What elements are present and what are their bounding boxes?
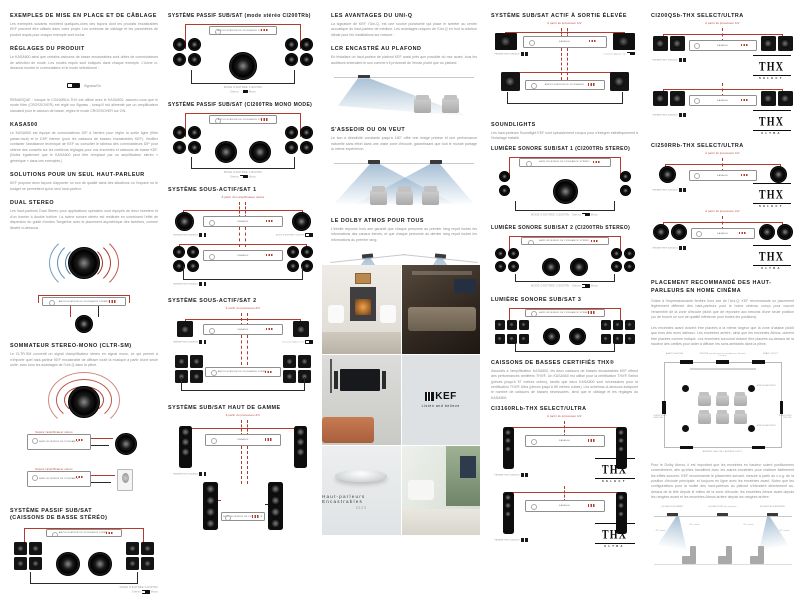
square-speaker-icon <box>14 542 27 555</box>
tower-speaker-icon <box>268 482 283 530</box>
square-speaker-icon <box>177 321 193 337</box>
wire-caption: À partir du processeur A/V <box>168 307 318 310</box>
kef-tagline: Listen and believe <box>422 404 460 408</box>
dip-switch-icon <box>525 52 528 56</box>
round-speaker-icon <box>659 166 676 183</box>
round-speaker-icon <box>653 224 669 240</box>
input-mode-caption: MODE D'ENTRÉE CI200TRbStereo Mono <box>168 86 318 94</box>
section-body: Grâce à l'impressionnante fenêtre hors a… <box>651 299 794 321</box>
wire-caption: À partir du processeur A/V <box>168 414 318 417</box>
square-speaker-icon <box>761 36 776 51</box>
tower-speaker-icon <box>203 482 218 530</box>
kasa-settings-caption: PARAMÈTRES KASA500 <box>653 58 709 62</box>
amplifier-box: AMPLIFICATEUR DE PUISSANCE STÉRÉO <box>525 309 605 317</box>
seat-icon <box>734 413 747 424</box>
diagram-title: CI200QSb-THX SELECT/ULTRA <box>651 13 794 19</box>
amplifier-box: KASA500 <box>525 500 605 512</box>
switch-label: Bypass/On <box>84 84 101 88</box>
amplifier-box: KASA500 <box>689 170 757 181</box>
seat-icon <box>716 413 729 424</box>
dip-switch-icon <box>521 538 524 542</box>
round-speaker-icon <box>611 248 622 259</box>
diagram-title: SYSTÈME PASSIF SUB/SAT (mode stéréo CI20… <box>168 13 318 19</box>
section-body: Pour le Dolby Atmos, il est important qu… <box>651 463 794 501</box>
atmos-ceiling-speaker <box>682 385 689 392</box>
round-speaker-icon <box>759 224 775 240</box>
tv-screen <box>460 456 476 478</box>
round-speaker-icon <box>188 53 201 66</box>
square-speaker-icon <box>670 91 685 106</box>
amplifier-box: KASA500 <box>689 95 757 106</box>
ceiling-line <box>334 77 474 78</box>
seat-icon <box>442 98 459 113</box>
amplifier-box: KASA500 <box>691 228 755 239</box>
square-speaker-icon <box>613 334 623 344</box>
round-speaker-icon <box>285 38 298 51</box>
amplifier-box: AMPLIFICATEUR DE PUISSANCE STÉRÉO <box>209 115 277 124</box>
square-speaker-icon <box>778 91 793 106</box>
subwoofer-icon <box>569 328 586 345</box>
cover-product-tile: Haut-parleurs Encastrables 2023 <box>322 446 401 535</box>
amplifier-box: AMPLIFICATEUR DE PUISSANCE STÉRÉO <box>209 26 277 35</box>
section-title: CAISSONS DE BASSES CERTIFIÉS THX® <box>491 360 638 366</box>
atmos-label: EN HAUTEUR AVANT <box>654 506 692 509</box>
seat-icon <box>734 395 747 406</box>
section-body: L'étroite réponse hors axe garantit que … <box>331 227 477 243</box>
diagram-lumiere-3: LUMIÈRE SONORE SUB/SAT 3 AMPLIFICATEUR D… <box>491 297 638 352</box>
wire-black <box>91 445 109 446</box>
section-uniq: LES AVANTAGES DU UNI-Q La signature de K… <box>331 13 477 38</box>
section-solutions: SOLUTIONS POUR UN SEUL HAUT-PARLEUR KEF … <box>10 172 158 192</box>
input-mode-caption: MODE D'ENTRÉE CI200TRb Stereo Mono <box>491 284 638 288</box>
atmos-ceiling-speaker <box>748 385 755 392</box>
photo-tv-wall-room <box>322 355 401 444</box>
round-speaker-icon <box>188 141 201 154</box>
cltr-sm-box: AMPLIFICATEUR DE PUISSANCE <box>27 471 91 487</box>
round-speaker-icon <box>300 38 313 51</box>
section-placement: PLACEMENT RECOMMANDÉ DES HAUT-PARLEURS E… <box>651 280 794 570</box>
section-body: Le KASA500 ainsi que certains caissons d… <box>10 55 158 71</box>
ceiling-speaker-icon <box>667 513 678 516</box>
square-speaker-icon <box>625 334 635 344</box>
photo-living-room-fireplace <box>322 265 401 354</box>
mode-switch-icon <box>240 90 248 93</box>
square-speaker-icon <box>519 320 529 330</box>
cabinet-speaker-icon <box>613 33 635 50</box>
room-illustration-lcr <box>334 71 474 119</box>
seat-icon <box>698 395 711 406</box>
crossover-caption: Crossover Bypass / On <box>265 340 313 344</box>
room-label: ATMOS/HAUTEUR <box>757 425 789 428</box>
round-speaker-icon <box>777 224 793 240</box>
dip-switch-icon <box>683 246 686 250</box>
atmos-side-diagram: EN HAUTEUR AVANT EN HAUTEUR (2e position… <box>654 506 792 570</box>
section-kasa500: KASA500 Le KASA500 est équipé de commuta… <box>10 122 158 164</box>
section-body: En installant un haut-parleur de plafond… <box>331 55 477 66</box>
dual-stereo-wiring: AMPLIFICATEUR DE PUISSANCE STÉRÉO <box>24 295 144 335</box>
front-left-speaker <box>680 360 693 364</box>
round-speaker-icon <box>285 53 298 66</box>
ceiling-line <box>334 163 474 164</box>
amplifier-box: AMPLIFICATEUR DE PUISSANCE STÉRÉO <box>519 158 611 167</box>
dip-switch-icon <box>199 233 202 237</box>
kasa-settings-caption: PARAMÈTRES KASA500 <box>495 52 553 56</box>
square-speaker-icon <box>507 334 517 344</box>
seat-icon <box>370 190 387 205</box>
centre-speaker <box>716 360 729 364</box>
section-title: SOMMATEUR STEREO-MONO (CLTR-SM) <box>10 343 158 349</box>
section-exemples: EXEMPLES DE MISE EN PLACE ET DE CÂBLAGE … <box>10 13 158 38</box>
dip-switch-icon <box>521 52 524 56</box>
square-speaker-icon <box>653 36 668 51</box>
wire-black <box>91 482 111 483</box>
section-sasseoir: S'ASSEOIR OU ON VEUT Le son à directivit… <box>331 127 477 209</box>
section-title: S'ASSEOIR OU ON VEUT <box>331 127 477 133</box>
kasa-settings-caption: PARAMÈTRES KASA500 <box>495 473 551 477</box>
square-speaker-icon <box>126 542 139 555</box>
wire-black <box>265 504 268 505</box>
wire-red <box>91 438 113 439</box>
cltr-sm-wiring-2: Depuis l'amplificateur stéréo AMPLIFICAT… <box>19 466 149 500</box>
wire-black <box>30 572 138 584</box>
round-speaker-icon <box>624 261 635 272</box>
input-mode-caption: MODE D'ENTRÉE CI200TRb Stereo Mono <box>491 213 638 217</box>
ceiling-speaker-icon <box>717 513 728 516</box>
section-soundlights: SOUNDLIGHTS Les haut-parleurs Soundlight… <box>491 122 638 142</box>
square-speaker-icon <box>495 320 505 330</box>
kasa-settings-caption: PARAMÈTRES KASA500 <box>173 472 231 476</box>
mode-switch-icon <box>240 175 248 178</box>
crossover-caption: Crossover Bypass / On <box>589 52 635 56</box>
square-speaker-icon <box>141 557 154 570</box>
kasa-settings-caption: PARAMÈTRES KASA500 <box>653 188 709 192</box>
dip-switch-icon <box>683 113 686 117</box>
square-speaker-icon <box>601 320 611 330</box>
section-passif-stereo-subs: SYSTÈME PASSIF SUB/SAT(CAISSONS DE BASSE… <box>10 508 158 595</box>
mode-switch-icon <box>305 233 313 236</box>
amplifier-box: KASA500 <box>203 250 283 261</box>
room-label: SURROUND DROITE <box>776 415 792 420</box>
square-speaker-icon <box>293 321 309 337</box>
diagram-sous-actif-1: SYSTÈME SOUS-ACTIF/SAT 1 À partir d'un a… <box>168 187 318 290</box>
amplifier-box: KASA500 <box>689 40 757 51</box>
section-lcr-plafond: LCR ENCASTRÉ AU PLAFOND En installant un… <box>331 46 477 119</box>
round-speaker-icon <box>187 246 199 258</box>
floor-line <box>654 564 792 565</box>
thx-ultra-logo: THXULTRA <box>753 245 791 270</box>
brochure-cover-collage: KEF Listen and believe Haut-parleurs Enc… <box>322 265 480 535</box>
wire-caption: À partir du processeur A/V <box>491 22 638 25</box>
round-speaker-icon <box>285 126 298 139</box>
section-body: La signature de KEF, l'Uni-Q, est une so… <box>331 22 477 38</box>
square-speaker-icon <box>495 334 505 344</box>
column-passive-systems: SYSTÈME PASSIF SUB/SAT (mode stéréo CI20… <box>168 0 318 540</box>
square-speaker-icon <box>610 72 629 91</box>
round-speaker-icon <box>173 141 186 154</box>
seat-icon <box>698 413 711 424</box>
room-illustration-wide <box>334 158 474 210</box>
diagram-lumiere-1: LUMIÈRE SONORE SUB/SAT 1 (CI200TRb STERE… <box>491 146 638 217</box>
wire-black <box>507 92 623 104</box>
round-speaker-icon <box>508 261 519 272</box>
kasa-settings-caption: PARAMÈTRES KASA500 <box>653 113 709 117</box>
diagram-title: SYSTÈME SOUS-ACTIF/SAT 2 <box>168 298 318 304</box>
square-speaker-icon <box>653 91 668 106</box>
seat-icon <box>414 98 431 113</box>
round-speaker-icon <box>175 212 194 231</box>
diagram-ci200qsb: CI200QSb-THX SELECT/ULTRA À partir du pr… <box>651 13 794 135</box>
square-speaker-icon <box>670 36 685 51</box>
amplifier-box: AMPLIFICATEUR DE PUISSANCE STÉRÉO <box>42 297 126 306</box>
room-label: ATMOS/HAUTEUR <box>757 385 789 388</box>
section-title: KASA500 <box>10 122 158 128</box>
section-title: LCR ENCASTRÉ AU PLAFOND <box>331 46 477 52</box>
input-mode-caption: MODE D'ENTRÉE CI200TRbStereo Mono <box>168 171 318 179</box>
square-speaker-icon <box>501 72 520 91</box>
dual-stereo-figure <box>36 236 132 292</box>
column-speaker-icon <box>179 426 192 468</box>
front-right-speaker <box>752 360 765 364</box>
diagram-title: SYSTÈME SUB/SAT HAUT DE GAMME <box>168 405 318 411</box>
wiring-diagram-ultra: KASA500 PARAMÈTRES KASA500 THXULTRA <box>495 486 635 548</box>
wire-red-dashed <box>247 335 248 365</box>
round-speaker-icon <box>671 224 687 240</box>
sofa <box>408 307 476 331</box>
square-speaker-icon <box>519 334 529 344</box>
wire-black <box>515 201 615 211</box>
wiring-diagram: KASA500 PARAMÈTRES KASA500 Crossover Byp… <box>173 313 313 397</box>
dip-switch-icon <box>683 58 686 62</box>
column-thx-placement: CI200QSb-THX SELECT/ULTRA À partir du pr… <box>651 0 794 578</box>
round-speaker-icon <box>285 141 298 154</box>
section-title: SOLUTIONS POUR UN SEUL HAUT-PARLEUR <box>10 172 158 178</box>
room-label: CENTRE (au-dessous ou au-dessus / derriè… <box>696 353 750 358</box>
amplifier-box: AMPLIFICATEUR DE PUISSANCE STÉRÉO <box>205 367 281 377</box>
seat-icon <box>396 190 413 205</box>
wire-red-dashed <box>247 446 248 484</box>
seat-icon <box>750 546 764 564</box>
wire-black <box>515 344 615 352</box>
wire-red <box>218 500 221 501</box>
dip-switch-icon <box>204 340 207 344</box>
surround-right-speaker <box>780 401 784 414</box>
square-speaker-icon <box>613 320 623 330</box>
section-body: Les haut-parleurs Soundlight KEF sont sp… <box>491 131 638 142</box>
wire-red <box>70 306 71 317</box>
wire-black <box>515 274 615 282</box>
armchair <box>408 480 434 500</box>
round-speaker-icon <box>301 246 313 258</box>
armchair <box>328 305 344 323</box>
mode-switch-icon <box>582 213 590 216</box>
wire-black <box>191 70 295 84</box>
diagram-title: LUMIÈRE SONORE SUB/SAT 1 (CI200TRb STERE… <box>491 146 638 152</box>
cover-year: 2023 <box>356 506 367 510</box>
diagram-title: LUMIÈRE SONORE SUB/SAT 3 <box>491 297 638 303</box>
bypass-switch-icon <box>67 83 80 88</box>
square-speaker-icon <box>625 320 635 330</box>
column-uniq-benefits: LES AVANTAGES DU UNI-Q La signature de K… <box>331 0 477 306</box>
section-dual-stereo: DUAL STEREO Les haut-parleurs Dual Stere… <box>10 200 158 335</box>
round-speaker-icon <box>499 185 510 196</box>
wiring-diagram: KASA500 PARAMÈTRES KASA500 MODE D'ENTRÉE… <box>173 202 313 290</box>
diagram-title: LUMIÈRE SONORE SUB/SAT 2 (CI200TRb STERE… <box>491 225 638 231</box>
dip-switch-icon <box>199 340 202 344</box>
dip-switch-icon <box>199 472 202 476</box>
atmos-label: EN HAUTEUR (2e position) <box>704 506 742 509</box>
diagram-passif-stereo: SYSTÈME PASSIF SUB/SAT (mode stéréo CI20… <box>168 13 318 94</box>
column-active-systems: SYSTÈME SUB/SAT ACTIF À SORTIE ÉLEVÉE À … <box>491 0 638 556</box>
fire-glow <box>355 299 371 315</box>
wire-black <box>191 157 295 169</box>
wire-red-dashed <box>241 446 242 484</box>
amplifier-box: KASA500 <box>205 434 281 446</box>
dip-switch-icon <box>204 233 207 237</box>
wiring-diagram: AMPLIFICATEUR DE PUISSANCE STÉRÉO <box>495 155 635 211</box>
thx-ultra-logo: THXULTRA <box>595 523 635 548</box>
dip-switch-icon <box>679 58 682 62</box>
square-speaker-icon <box>778 36 793 51</box>
section-body: Les exemples suivants montrent quelques-… <box>10 22 158 38</box>
wiring-diagram-ultra: KASA500 PARAMÈTRES KASA500 THXULTRA <box>653 83 793 135</box>
rear-left-speaker <box>680 446 693 450</box>
input-mode-caption: MODE D'ENTRÉE CI200TRb <box>257 233 313 237</box>
section-reglages: RÉGLAGES DU PRODUIT Le KASA500 ainsi que… <box>10 46 158 114</box>
dip-switch-icon <box>679 113 682 117</box>
kef-logo-icon <box>425 392 434 401</box>
ceiling-speaker-icon <box>430 160 442 164</box>
section-body: Le CLTR-SM convertit un signal d'amplifi… <box>10 352 158 368</box>
section-sommateur: SOMMATEUR STEREO-MONO (CLTR-SM) Le CLTR-… <box>10 343 158 499</box>
wiring-diagram: AMPLIFICATEUR DE PUISSANCE STÉRÉO <box>173 22 313 84</box>
wire-caption: À partir du processeur A/V <box>651 22 794 25</box>
dip-switch-icon <box>199 282 202 286</box>
section-body: REMARQUE : lorsque le CI3160RLb-THX est … <box>10 98 158 114</box>
section-body: Le KASA500 est équipé de commutateurs DI… <box>10 131 158 164</box>
seat-icon <box>682 546 696 564</box>
room-label: AVANT GAUCHE <box>658 353 692 356</box>
round-speaker-icon <box>620 171 631 182</box>
rug <box>322 332 401 354</box>
round-speaker-icon <box>300 141 313 154</box>
section-title: LE DOLBY ATMOS POUR TOUS <box>331 218 477 224</box>
wiring-diagram: KASA500 PARAMÈTRES KASA500 AMPLIFICATEUR… <box>173 420 313 532</box>
round-speaker-icon <box>173 126 186 139</box>
amplifier-box: KASA500 <box>203 216 283 227</box>
amplifier-box: KASA500 <box>523 36 607 48</box>
round-speaker-icon <box>495 261 506 272</box>
angle-label: 65° (max) <box>742 524 756 527</box>
section-title: SYSTÈME PASSIF SUB/SAT(CAISSONS DE BASSE… <box>10 508 158 524</box>
rug <box>402 509 481 535</box>
cabinet-speaker-icon <box>495 33 517 50</box>
square-speaker-icon <box>601 334 611 344</box>
round-speaker-icon <box>495 248 506 259</box>
diagram-title: SYSTÈME SUB/SAT ACTIF À SORTIE ÉLEVÉE <box>491 13 638 19</box>
ceiling-line <box>654 516 792 517</box>
atmos-ceiling-speaker <box>682 425 689 432</box>
angle-label: 65° (max) <box>688 524 702 527</box>
ceiling-speaker-product <box>335 470 387 482</box>
round-speaker-icon <box>300 53 313 66</box>
thx-select-logo: THXSELECT <box>753 183 791 208</box>
thx-select-logo: THXSELECT <box>595 458 635 483</box>
cltr-sm-box: AMPLIFICATEUR DE PUISSANCE <box>27 434 91 450</box>
seat-icon <box>716 395 729 406</box>
angle-label: 45° (max) <box>778 530 792 533</box>
dip-switch-icon <box>521 473 524 477</box>
round-speaker-icon <box>173 53 186 66</box>
section-title: LES AVANTAGES DU UNI-Q <box>331 13 477 19</box>
wire-caption: À partir d'un amplificateur stéréo <box>168 196 318 199</box>
atmos-ceiling-speaker <box>748 425 755 432</box>
ceiling-speaker-icon <box>767 513 778 516</box>
wiring-diagram: AMPLIFICATEUR DE PUISSANCE STÉRÉO <box>495 234 635 282</box>
square-speaker-icon <box>298 355 311 368</box>
round-speaker-icon <box>508 248 519 259</box>
square-speaker-icon <box>126 557 139 570</box>
kasa-settings-caption: PARAMÈTRES KASA500 <box>653 246 709 250</box>
diagram-passif-mono: SYSTÈME PASSIF SUB/SAT (CI200TRb MONO MO… <box>168 102 318 179</box>
section-body: Le son à directivité constante jusqu'à 1… <box>331 136 477 152</box>
section-title: SOUNDLIGHTS <box>491 122 638 128</box>
amplifier-box: AMPLIFICATEUR DE PUISSANCE <box>525 80 605 90</box>
in-wall-subwoofer-icon <box>503 492 514 534</box>
round-speaker-icon <box>770 166 787 183</box>
room-label: ARRIÈRE GAUCHE / ARRIÈRE DROIT <box>676 451 770 454</box>
wire-black <box>183 266 303 280</box>
cover-title: Haut-parleurs Encastrables <box>322 494 401 504</box>
square-speaker-icon <box>141 542 154 555</box>
round-speaker-icon <box>287 246 299 258</box>
kef-logo-tile: KEF Listen and believe <box>402 355 481 444</box>
wire-caption: À partir du processeur A/V <box>651 210 794 213</box>
round-speaker-icon <box>173 246 185 258</box>
round-speaker-icon <box>624 248 635 259</box>
brochure-spread: { "shared": { "stereo_amp": "AMPLIFICATE… <box>0 0 802 535</box>
section-title: DUAL STEREO <box>10 200 158 206</box>
in-wall-speaker <box>334 371 338 389</box>
ceiling-speaker-icon <box>358 75 370 79</box>
diagram-title: CI250RRb-THX SELECT/ULTRA <box>651 143 794 149</box>
amplifier-box: KASA500 <box>203 324 283 335</box>
dip-switch-icon <box>679 246 682 250</box>
photo-dark-lounge <box>402 265 481 354</box>
round-speaker-icon <box>188 126 201 139</box>
diagram-sous-actif-2: SYSTÈME SOUS-ACTIF/SAT 2 À partir du pro… <box>168 298 318 397</box>
section-body: Les enceintes avant doivent être placées… <box>651 326 794 348</box>
section-caissons-thx: CAISSONS DE BASSES CERTIFIÉS THX® Associ… <box>491 360 638 402</box>
kasa-settings-caption: PARAMÈTRES KASA500 <box>495 538 551 542</box>
round-speaker-icon <box>173 38 186 51</box>
kasa-settings-caption: PARAMÈTRES KASA500 <box>173 282 233 286</box>
mode-switch-icon <box>142 590 150 593</box>
section-title: RÉGLAGES DU PRODUIT <box>10 46 158 52</box>
dip-switch-icon <box>525 538 528 542</box>
on-wall-speaker-icon <box>117 469 133 491</box>
wire-red-dashed <box>241 335 242 365</box>
wiring-diagram-select: KASA500 PARAMÈTRES KASA500 THXSELECT <box>495 421 635 483</box>
round-speaker-icon <box>68 247 100 279</box>
square-speaker-icon <box>190 355 203 368</box>
room-label: SURROUND GAUCHE <box>654 415 670 420</box>
square-speaker-icon <box>29 557 42 570</box>
diagram-lumiere-2: LUMIÈRE SONORE SUB/SAT 2 (CI200TRb STERE… <box>491 225 638 288</box>
square-speaker-icon <box>175 355 188 368</box>
floor-lamp <box>330 359 332 393</box>
diagram-title: SYSTÈME SOUS-ACTIF/SAT 1 <box>168 187 318 193</box>
diagram-title: SYSTÈME PASSIF SUB/SAT (CI200TRb MONO MO… <box>168 102 318 108</box>
